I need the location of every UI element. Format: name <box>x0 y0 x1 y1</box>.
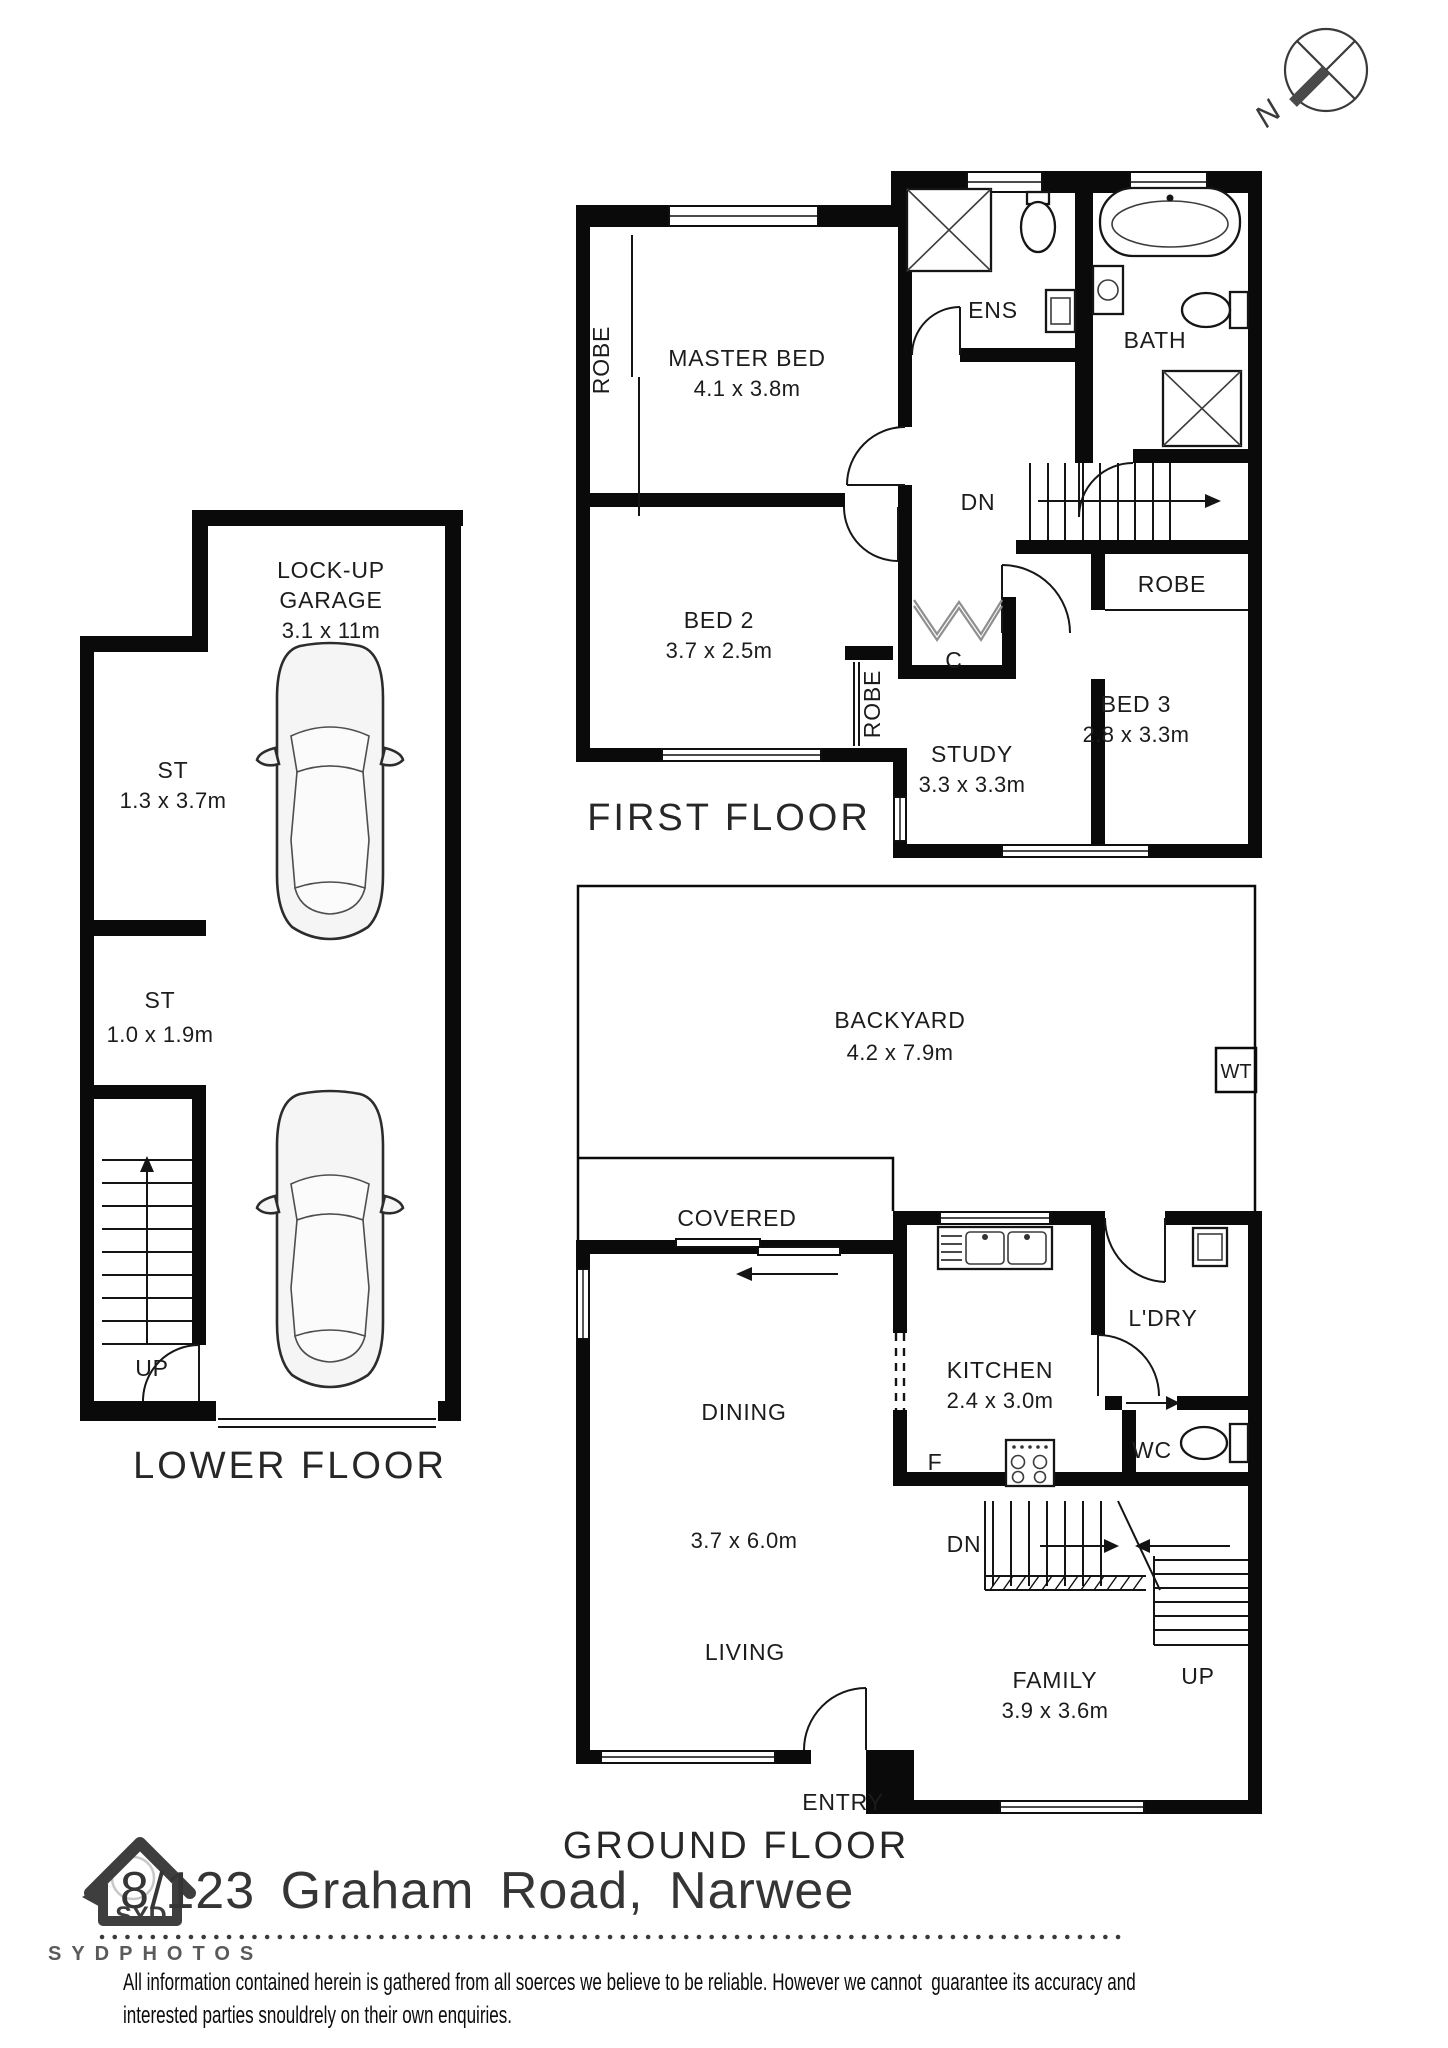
kitchen-sink <box>938 1227 1052 1269</box>
ensuite-shower <box>907 189 991 271</box>
label-storage2-dims: 1.0 x 1.9m <box>107 1022 214 1047</box>
garage-door <box>218 1419 436 1427</box>
label-backyard-dims: 4.2 x 7.9m <box>847 1040 954 1065</box>
disclaimer-line2: interested parties snouldrely on their o… <box>123 2002 512 2029</box>
label-bed2-dims: 3.7 x 2.5m <box>666 638 773 663</box>
floorplan-page: N <box>0 0 1448 2048</box>
stove <box>1006 1440 1054 1486</box>
label-dining-living-dims: 3.7 x 6.0m <box>691 1528 798 1553</box>
label-living: LIVING <box>705 1639 785 1665</box>
label-storage2: ST <box>145 987 176 1013</box>
label-bed2-robe: ROBE <box>859 670 885 738</box>
label-bed3-dims: 2.8 x 3.3m <box>1083 722 1190 747</box>
floorplan-drawing: N <box>0 0 1448 2048</box>
label-gf-up: UP <box>1181 1663 1215 1689</box>
disclaimer-line1: All information contained herein is gath… <box>123 1969 1136 1996</box>
label-fridge: F <box>928 1449 943 1475</box>
first-floor-title: FIRST FLOOR <box>587 797 871 839</box>
car-2 <box>257 1091 403 1387</box>
ground-floor-title: GROUND FLOOR <box>563 1825 909 1867</box>
label-family-dims: 3.9 x 3.6m <box>1002 1698 1109 1723</box>
laundry-sink <box>1193 1228 1227 1266</box>
label-master-bed-dims: 4.1 x 3.8m <box>694 376 801 401</box>
label-bed2: BED 2 <box>684 607 754 633</box>
master-robe-doors <box>632 235 639 516</box>
bath-shower <box>1163 371 1241 446</box>
label-closet: C <box>945 647 962 673</box>
first-floor-stairs <box>1030 463 1221 540</box>
closet-bifold-doors <box>914 600 1002 640</box>
water-tank: WT <box>1216 1048 1256 1092</box>
label-storage1-dims: 1.3 x 3.7m <box>120 788 227 813</box>
label-master-robe: ROBE <box>588 326 614 394</box>
label-garage-line1: LOCK-UP <box>277 557 385 583</box>
ground-floor-plan: WT <box>563 886 1262 1867</box>
brand-text: SYDPHOTOS <box>48 1943 263 1965</box>
label-master-bed: MASTER BED <box>668 345 826 371</box>
label-entry: ENTRY <box>802 1789 884 1815</box>
label-kitchen-dims: 2.4 x 3.0m <box>947 1388 1054 1413</box>
bathtub <box>1100 188 1240 256</box>
first-floor-plan: MASTER BED 4.1 x 3.8m ROBE ENS BATH DN R… <box>576 171 1262 858</box>
compass-icon: N <box>1248 29 1367 134</box>
ensuite-vanity <box>1046 290 1075 332</box>
label-dining: DINING <box>701 1399 786 1425</box>
footer: SYD 8/123 Graham Road, Narwee SYDPHOTOS … <box>48 1843 1136 2029</box>
bath-vanity <box>1093 266 1123 314</box>
label-bed3-robe: ROBE <box>1138 571 1206 597</box>
label-covered: COVERED <box>677 1205 796 1231</box>
compass-north-label: N <box>1248 93 1289 134</box>
label-garage-line2: GARAGE <box>279 587 382 613</box>
label-kitchen: KITCHEN <box>947 1357 1054 1383</box>
label-study-dims: 3.3 x 3.3m <box>919 772 1026 797</box>
label-gf-dn: DN <box>947 1531 982 1557</box>
label-backyard: BACKYARD <box>834 1007 965 1033</box>
label-bed3: BED 3 <box>1101 691 1171 717</box>
label-lf-up: UP <box>135 1355 169 1381</box>
car-1 <box>257 643 403 939</box>
label-ff-dn: DN <box>961 489 996 515</box>
ensuite-toilet <box>1021 192 1055 252</box>
label-water-tank: WT <box>1220 1061 1251 1083</box>
label-laundry: L'DRY <box>1128 1305 1197 1331</box>
label-storage1: ST <box>158 757 189 783</box>
label-family: FAMILY <box>1013 1667 1098 1693</box>
bath-toilet <box>1182 292 1248 328</box>
backyard-boundary <box>578 886 1255 1254</box>
address-text: 8/123 Graham Road, Narwee <box>120 1862 854 1920</box>
ground-floor-walls <box>576 1211 1262 1814</box>
wc-toilet <box>1181 1424 1248 1462</box>
label-garage-dims: 3.1 x 11m <box>282 618 381 643</box>
lower-floor-plan: LOCK-UP GARAGE 3.1 x 11m ST 1.3 x 3.7m S… <box>80 510 463 1487</box>
label-ens: ENS <box>968 297 1018 323</box>
kitchen-servery-dashed <box>896 1333 904 1410</box>
label-bath: BATH <box>1124 327 1187 353</box>
lower-floor-title: LOWER FLOOR <box>133 1445 447 1487</box>
ground-floor-stairs <box>985 1501 1248 1645</box>
lower-floor-walls <box>80 510 463 1421</box>
label-study: STUDY <box>931 741 1013 767</box>
label-wc: WC <box>1132 1437 1172 1463</box>
